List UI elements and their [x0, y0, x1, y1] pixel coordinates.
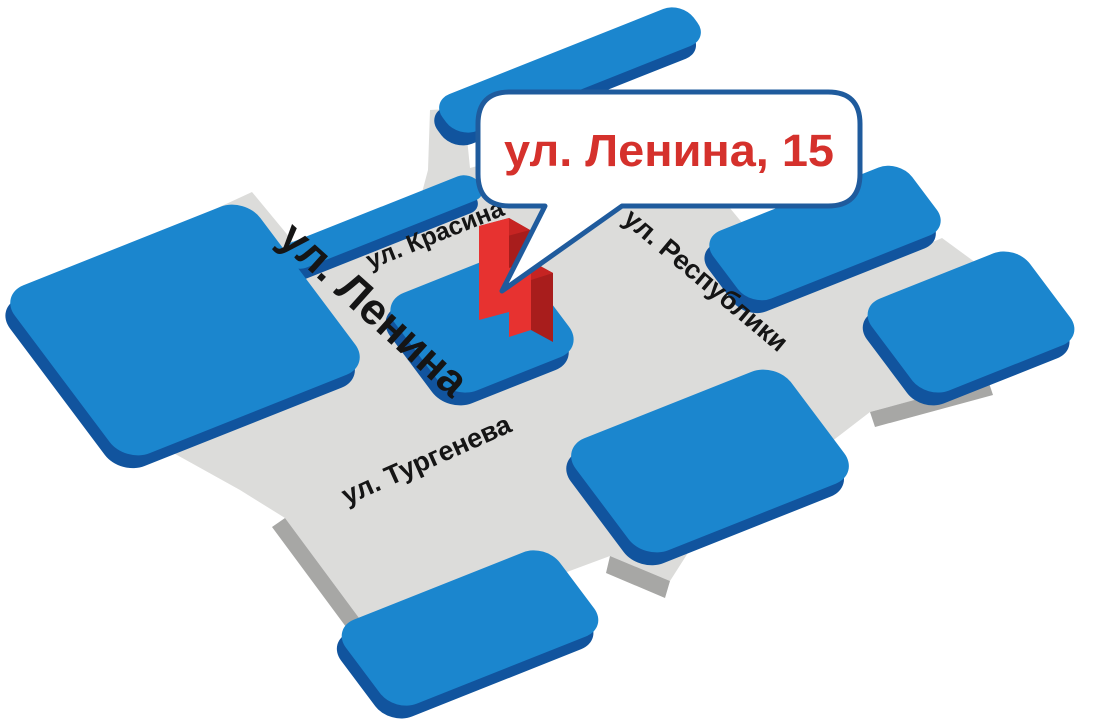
route-map-illustration: ул. Красина ул. Ленина ул. Республики ул… [0, 0, 1107, 722]
map-canvas: ул. Красина ул. Ленина ул. Республики ул… [0, 0, 1107, 722]
building-tall-front [479, 218, 509, 320]
callout-address-text: ул. Ленина, 15 [504, 125, 834, 176]
